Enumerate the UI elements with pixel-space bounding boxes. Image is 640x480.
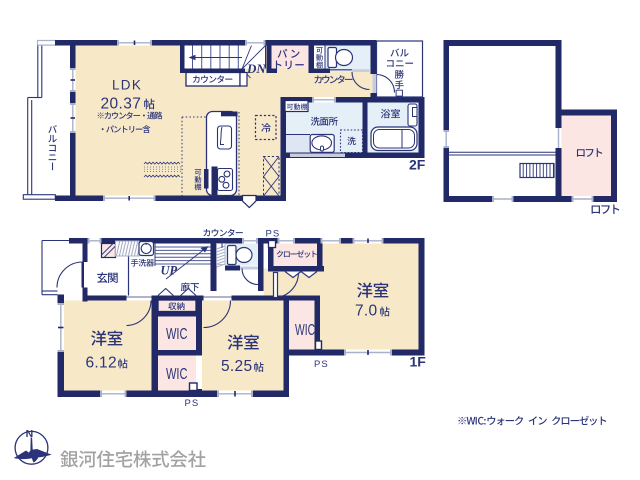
svg-text:PS: PS bbox=[266, 229, 281, 240]
svg-text:2F: 2F bbox=[409, 157, 426, 173]
svg-text:DN: DN bbox=[246, 61, 266, 76]
svg-text:WIC: WIC bbox=[166, 366, 188, 383]
svg-text:N: N bbox=[26, 428, 34, 440]
svg-text:5.25: 5.25 bbox=[221, 358, 252, 375]
svg-text:1F: 1F bbox=[410, 354, 427, 370]
svg-text:LDK: LDK bbox=[112, 78, 142, 93]
svg-text:UP: UP bbox=[161, 264, 178, 278]
svg-text:20.37: 20.37 bbox=[101, 95, 142, 112]
svg-text:7.0: 7.0 bbox=[355, 303, 378, 320]
svg-text:PS: PS bbox=[185, 398, 200, 409]
svg-text:WIC: WIC bbox=[166, 326, 188, 343]
svg-text:6.12: 6.12 bbox=[86, 355, 117, 372]
svg-text:PS: PS bbox=[314, 359, 329, 370]
svg-text:WIC: WIC bbox=[295, 322, 315, 339]
